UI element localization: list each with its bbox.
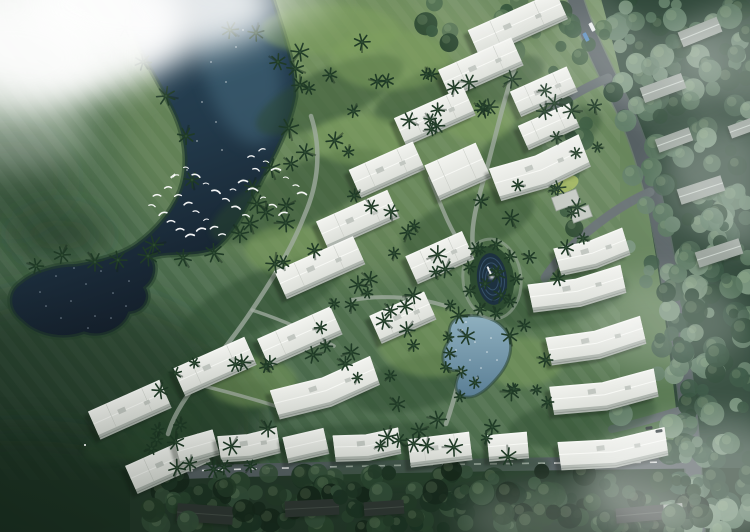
masterplan-scene [0, 0, 750, 532]
aerial-masterplan-render [0, 0, 750, 532]
vignette [0, 0, 750, 532]
